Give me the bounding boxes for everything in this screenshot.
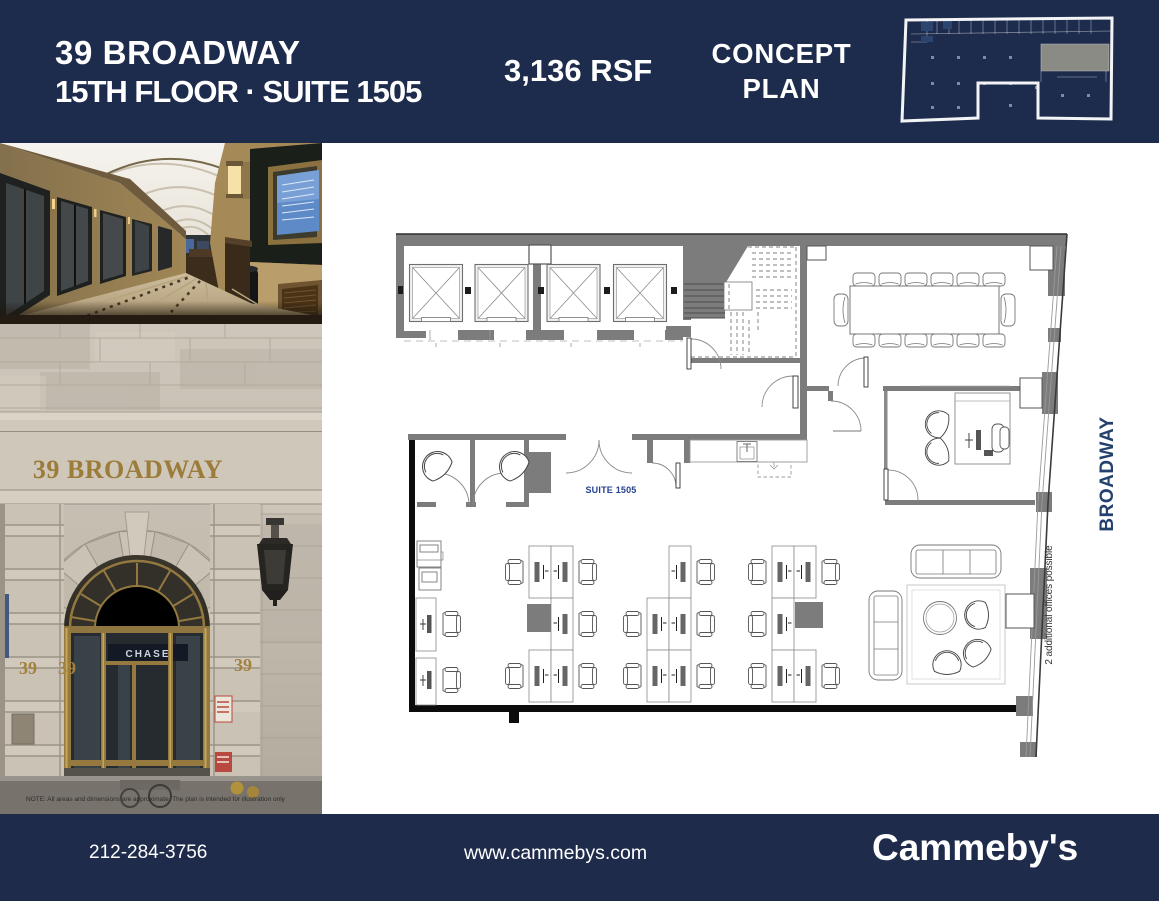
svg-text:39 BROADWAY: 39 BROADWAY <box>33 455 223 484</box>
svg-text:39: 39 <box>19 658 37 678</box>
svg-text:39: 39 <box>58 658 76 678</box>
svg-text:SUITE 1505: SUITE 1505 <box>585 485 636 495</box>
svg-text:NOTE: All areas and dimensions: NOTE: All areas and dimensions are appro… <box>26 796 286 803</box>
svg-text:CHASE: CHASE <box>125 649 170 660</box>
svg-text:2 additional offices possible: 2 additional offices possible <box>1044 545 1055 665</box>
svg-text:BROADWAY: BROADWAY <box>1097 416 1118 531</box>
svg-text:39: 39 <box>234 655 252 675</box>
